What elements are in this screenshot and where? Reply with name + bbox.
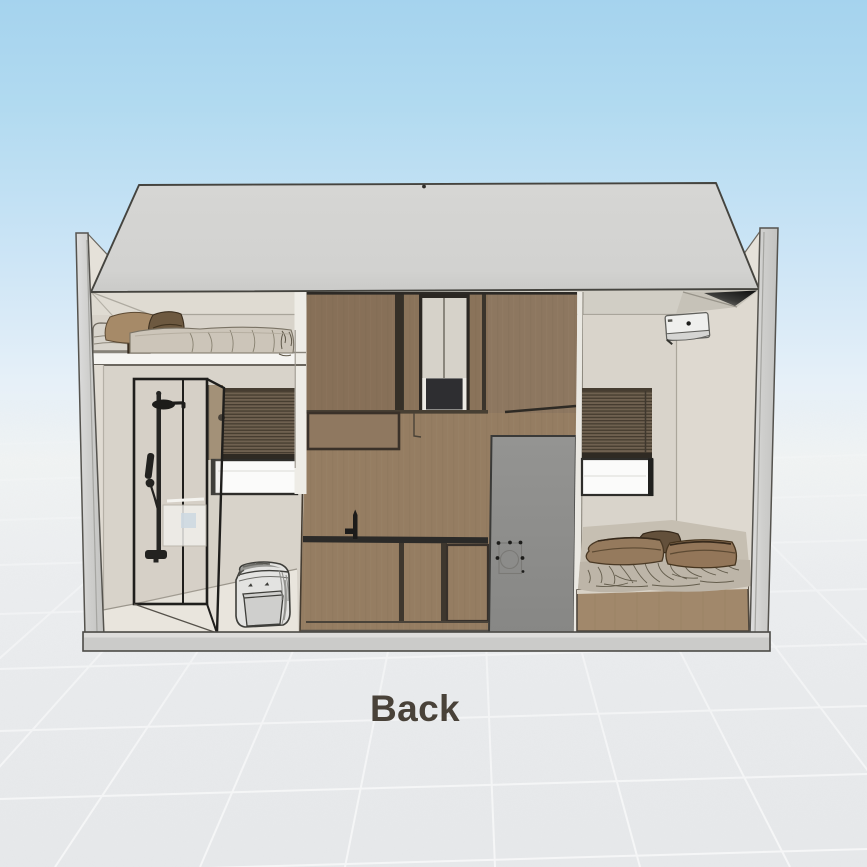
svg-text:Back: Back — [370, 688, 460, 729]
